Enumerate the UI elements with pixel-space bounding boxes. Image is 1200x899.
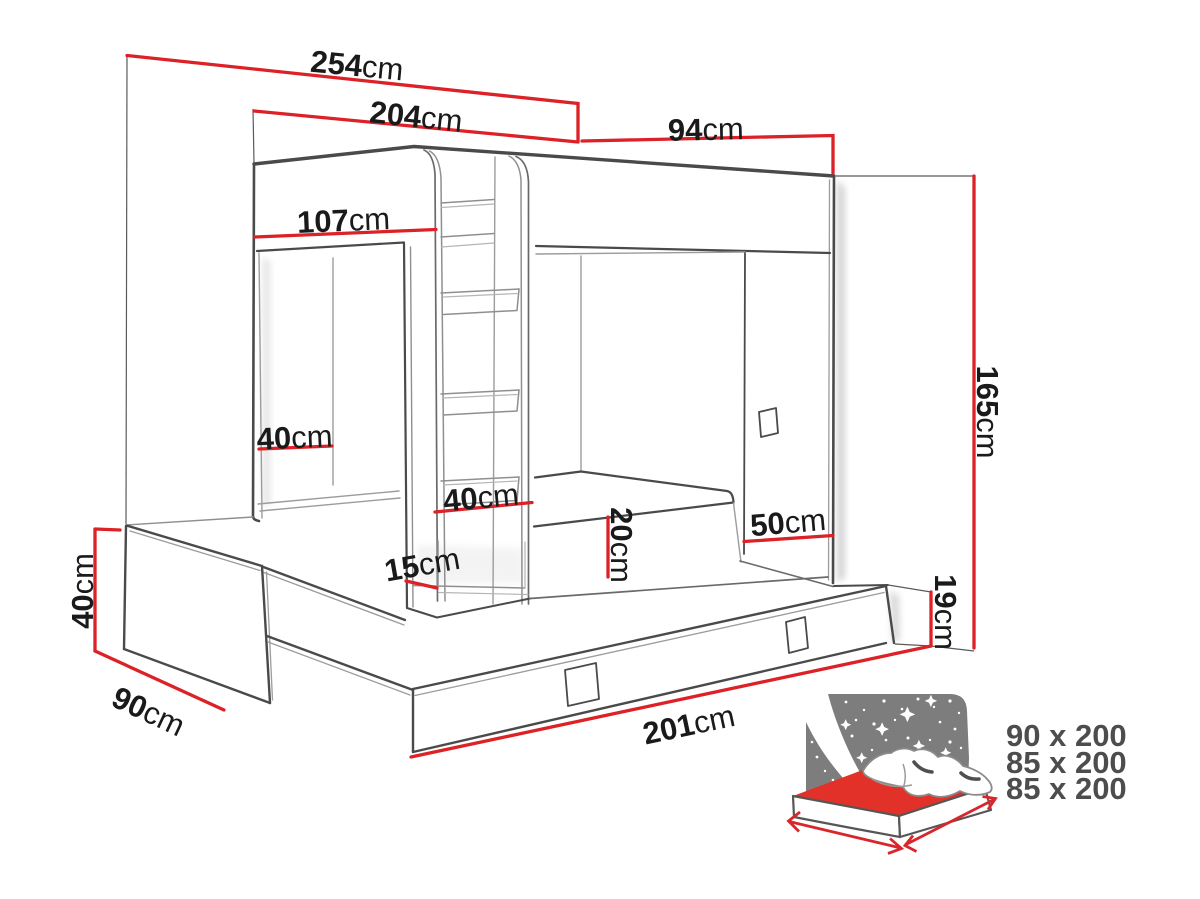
svg-text:50cm: 50cm <box>749 502 828 543</box>
svg-text:40cm: 40cm <box>65 553 100 629</box>
svg-text:107cm: 107cm <box>296 201 390 240</box>
svg-text:94cm: 94cm <box>667 111 744 148</box>
svg-text:165cm: 165cm <box>970 365 1005 458</box>
svg-text:20cm: 20cm <box>604 507 639 583</box>
svg-text:40cm: 40cm <box>256 418 333 456</box>
svg-text:85 x 200: 85 x 200 <box>1006 771 1127 806</box>
svg-text:19cm: 19cm <box>928 574 963 650</box>
svg-text:40cm: 40cm <box>442 476 521 518</box>
